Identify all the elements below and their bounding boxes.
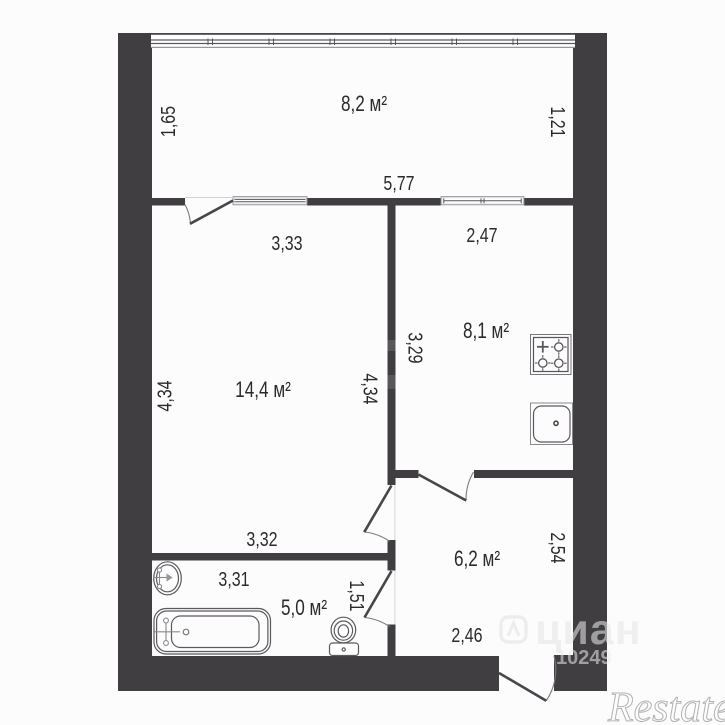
svg-text:8,1 м²: 8,1 м² bbox=[463, 319, 509, 344]
svg-text:5,0 м²: 5,0 м² bbox=[281, 596, 327, 621]
svg-text:10249: 10249 bbox=[556, 647, 612, 669]
svg-text:Restate: Restate bbox=[607, 685, 725, 725]
svg-text:1,65: 1,65 bbox=[157, 106, 179, 137]
svg-text:3,32: 3,32 bbox=[246, 528, 277, 550]
svg-text:2,47: 2,47 bbox=[466, 224, 497, 246]
svg-text:3,31: 3,31 bbox=[218, 568, 249, 590]
svg-text:3,29: 3,29 bbox=[404, 332, 426, 363]
svg-text:2,46: 2,46 bbox=[451, 624, 482, 646]
svg-text:1,51: 1,51 bbox=[346, 580, 368, 611]
svg-text:4,34: 4,34 bbox=[154, 380, 176, 411]
svg-text:1,21: 1,21 bbox=[547, 106, 569, 137]
svg-text:5,77: 5,77 bbox=[383, 172, 414, 194]
svg-text:8,2 м²: 8,2 м² bbox=[341, 92, 387, 117]
svg-text:14,4 м²: 14,4 м² bbox=[235, 378, 291, 403]
svg-text:3,33: 3,33 bbox=[271, 232, 302, 254]
svg-text:6,2 м²: 6,2 м² bbox=[454, 547, 500, 572]
svg-text:4,34: 4,34 bbox=[359, 373, 381, 404]
svg-text:2,54: 2,54 bbox=[547, 532, 569, 563]
